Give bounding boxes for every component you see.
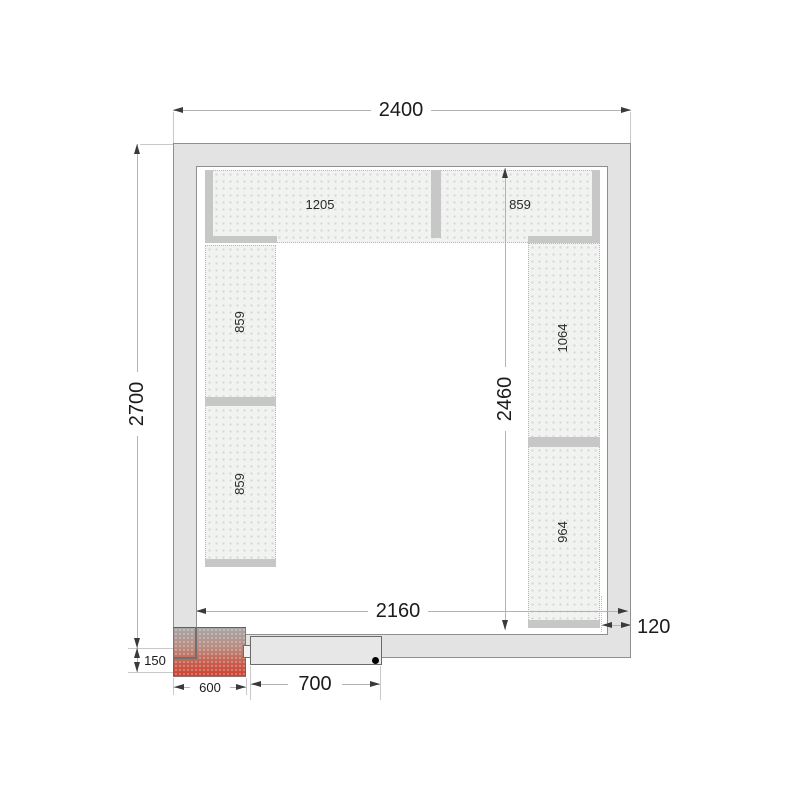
ext-line-2700-top xyxy=(140,144,173,145)
shelf-support-right-bottom xyxy=(528,620,600,628)
shelf-support-top-left xyxy=(205,170,213,238)
arrow-150-bottom xyxy=(134,662,140,672)
arrow-600-left xyxy=(174,684,184,690)
dim-label-door-width: 700 xyxy=(288,672,342,696)
shelf-divider-right xyxy=(528,437,600,447)
dim-label-inner-height: 2460 xyxy=(493,367,517,431)
arrow-2160-left xyxy=(196,608,206,614)
shelf-label-left-lower: 859 xyxy=(232,459,248,509)
floor-plan: 1205 859 859 859 1064 964 2400 2700 2460… xyxy=(0,0,800,800)
arrow-2400-right xyxy=(621,107,631,113)
shelf-label-right-upper: 1064 xyxy=(555,313,571,363)
arrow-2460-top xyxy=(502,168,508,178)
ext-line-2400-right xyxy=(630,112,631,143)
shelf-divider-left xyxy=(205,397,276,406)
arrow-150-top xyxy=(134,648,140,658)
arrow-2700-top xyxy=(134,144,140,154)
ext-line-700-right xyxy=(380,666,381,700)
arrow-2460-bottom xyxy=(502,620,508,630)
wall-corner-over-unit xyxy=(173,627,197,659)
shelf-label-top-left: 1205 xyxy=(290,197,350,213)
shelf-right xyxy=(528,243,600,628)
arrow-2700-bottom xyxy=(134,638,140,648)
shelf-support-left-bottom xyxy=(205,559,276,567)
dim-label-unit-height: 150 xyxy=(141,652,169,669)
shelf-support-top-right-bottom xyxy=(528,236,600,243)
dim-label-inner-width: 2160 xyxy=(368,599,428,623)
dim-label-outer-width: 2400 xyxy=(371,98,431,122)
dim-label-unit-width: 600 xyxy=(190,679,230,696)
ext-line-150-bottom xyxy=(128,672,173,673)
arrow-2400-left xyxy=(173,107,183,113)
shelf-left xyxy=(205,245,276,567)
ext-line-2400-left xyxy=(173,112,174,143)
arrow-700-right xyxy=(370,681,380,687)
arrow-120-left xyxy=(602,622,612,628)
shelf-support-top-right xyxy=(592,170,600,238)
shelf-support-top-middle xyxy=(431,170,441,238)
dim-label-outer-height: 2700 xyxy=(125,372,149,436)
shelf-label-right-lower: 964 xyxy=(555,507,571,557)
door-panel xyxy=(250,636,382,665)
arrow-600-right xyxy=(236,684,246,690)
shelf-support-top-left-bottom xyxy=(205,236,277,243)
shelf-label-left-upper: 859 xyxy=(232,297,248,347)
dim-label-wall-thickness: 120 xyxy=(637,615,685,639)
door-hinge-dot xyxy=(372,657,379,664)
ext-line-600-right xyxy=(246,678,247,695)
arrow-120-right xyxy=(621,622,631,628)
arrow-2160-right xyxy=(618,608,628,614)
arrow-700-left xyxy=(251,681,261,687)
